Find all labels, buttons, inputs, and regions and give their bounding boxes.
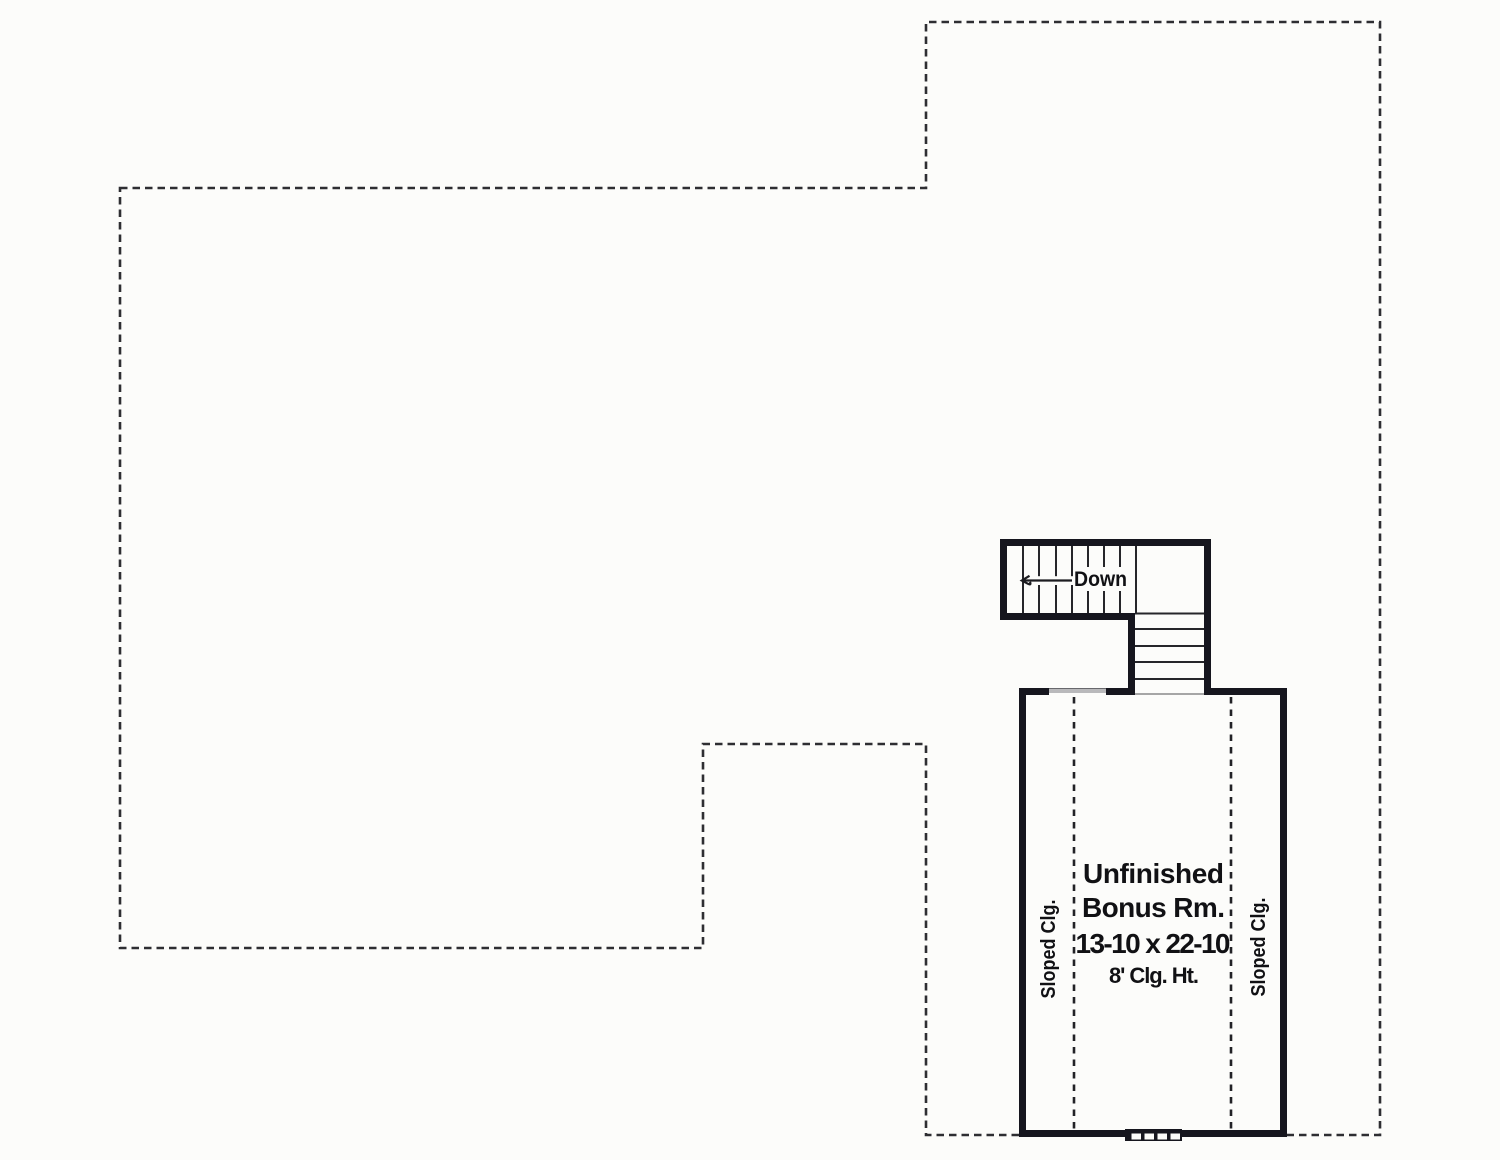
svg-text:Sloped Clg.: Sloped Clg.: [1248, 898, 1270, 997]
svg-text:Bonus Rm.: Bonus Rm.: [1082, 892, 1225, 923]
svg-text:Down: Down: [1074, 568, 1127, 591]
svg-text:Unfinished: Unfinished: [1083, 858, 1224, 889]
svg-text:Sloped Clg.: Sloped Clg.: [1038, 900, 1060, 999]
svg-text:8' Clg. Ht.: 8' Clg. Ht.: [1109, 963, 1199, 988]
svg-text:13-10 x 22-10: 13-10 x 22-10: [1076, 928, 1231, 959]
